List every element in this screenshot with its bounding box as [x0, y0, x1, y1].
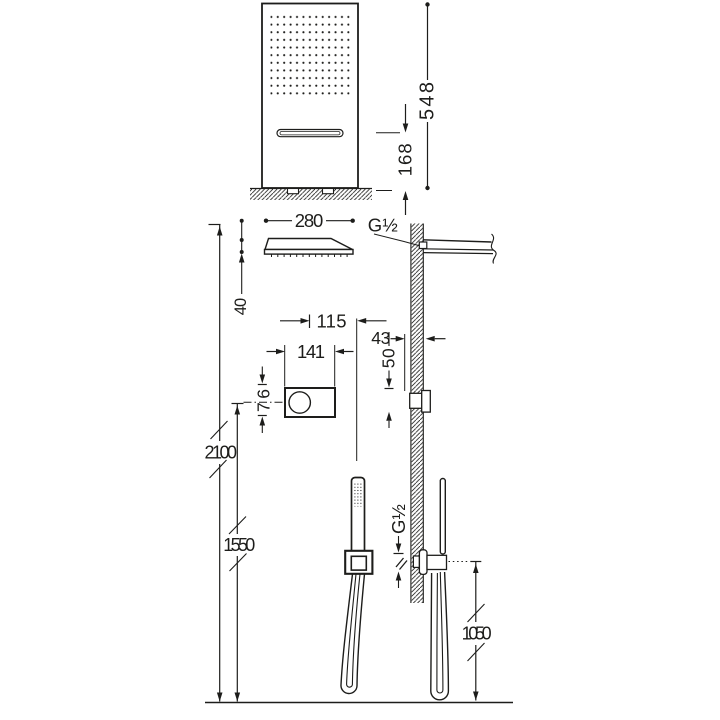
thermostat-side-view	[410, 391, 431, 413]
thread-bottom-label: G½	[388, 504, 409, 534]
wall-section	[411, 224, 423, 604]
hand-shower-wand-side	[440, 479, 445, 555]
cascade-slot	[277, 130, 343, 137]
dim-50-label: 50	[378, 348, 398, 368]
hand-shower-holder-opening	[351, 556, 366, 570]
wall-hatch	[411, 224, 423, 604]
hand-shower-spray-face	[354, 482, 362, 507]
dim-43-label: 43	[371, 328, 390, 348]
thread-top-label: G½	[368, 215, 398, 236]
nozzle-grid	[271, 11, 350, 99]
control-knob-side	[422, 391, 431, 413]
dim-168-label: 168	[394, 143, 415, 176]
control-recessed-body	[410, 393, 422, 408]
installation-drawing: 548 168 280 G½	[0, 0, 720, 720]
shower-panel-top-view	[262, 4, 358, 189]
dim-1550-label: 1550	[223, 535, 255, 555]
arm-wall-connector	[419, 242, 427, 249]
dim-2100-label: 2100	[205, 443, 238, 463]
dim-280-label: 280	[295, 210, 324, 231]
background	[0, 0, 720, 720]
dim-548-label: 548	[417, 82, 439, 120]
head-rim	[265, 250, 354, 255]
mount-tab-left	[288, 189, 299, 194]
dim-40-label: 40	[232, 298, 250, 316]
holder-bracket	[427, 555, 447, 569]
dim-141-label: 141	[297, 341, 325, 362]
holder-wall-connector	[413, 556, 419, 567]
holder-flange	[419, 550, 427, 575]
ceiling-hatch	[250, 189, 372, 201]
mount-tab-right	[323, 189, 334, 194]
ceiling-section	[250, 189, 372, 201]
dim-1050-label: 1050	[462, 624, 492, 644]
dim-115-label: 115	[317, 310, 347, 331]
control-knob	[289, 392, 310, 413]
